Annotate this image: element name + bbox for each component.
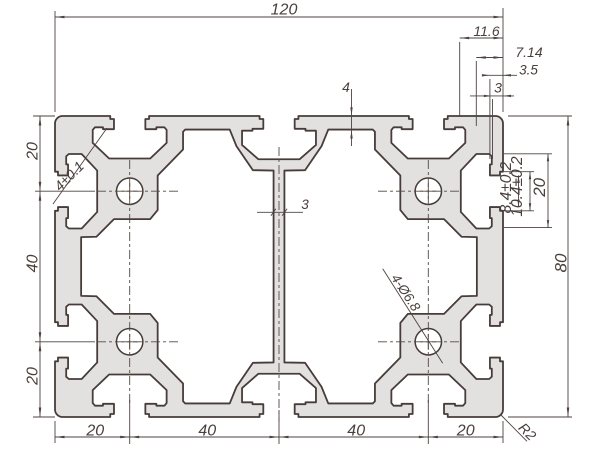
svg-text:40: 40 xyxy=(25,255,42,273)
svg-text:3: 3 xyxy=(301,197,309,212)
svg-text:3.5: 3.5 xyxy=(519,63,538,78)
svg-text:40: 40 xyxy=(347,423,365,440)
svg-text:3: 3 xyxy=(494,80,502,96)
svg-text:11.6: 11.6 xyxy=(473,23,499,39)
svg-text:40: 40 xyxy=(198,423,216,440)
svg-text:10.4±0.2: 10.4±0.2 xyxy=(509,156,526,217)
svg-text:4: 4 xyxy=(342,79,350,95)
svg-text:20: 20 xyxy=(85,423,104,440)
svg-text:20: 20 xyxy=(456,423,475,440)
svg-text:20: 20 xyxy=(25,367,42,386)
svg-text:7.14: 7.14 xyxy=(515,44,542,60)
svg-text:20: 20 xyxy=(25,142,42,161)
svg-text:80: 80 xyxy=(552,253,571,272)
svg-text:120: 120 xyxy=(271,2,298,19)
svg-text:20: 20 xyxy=(530,177,549,197)
